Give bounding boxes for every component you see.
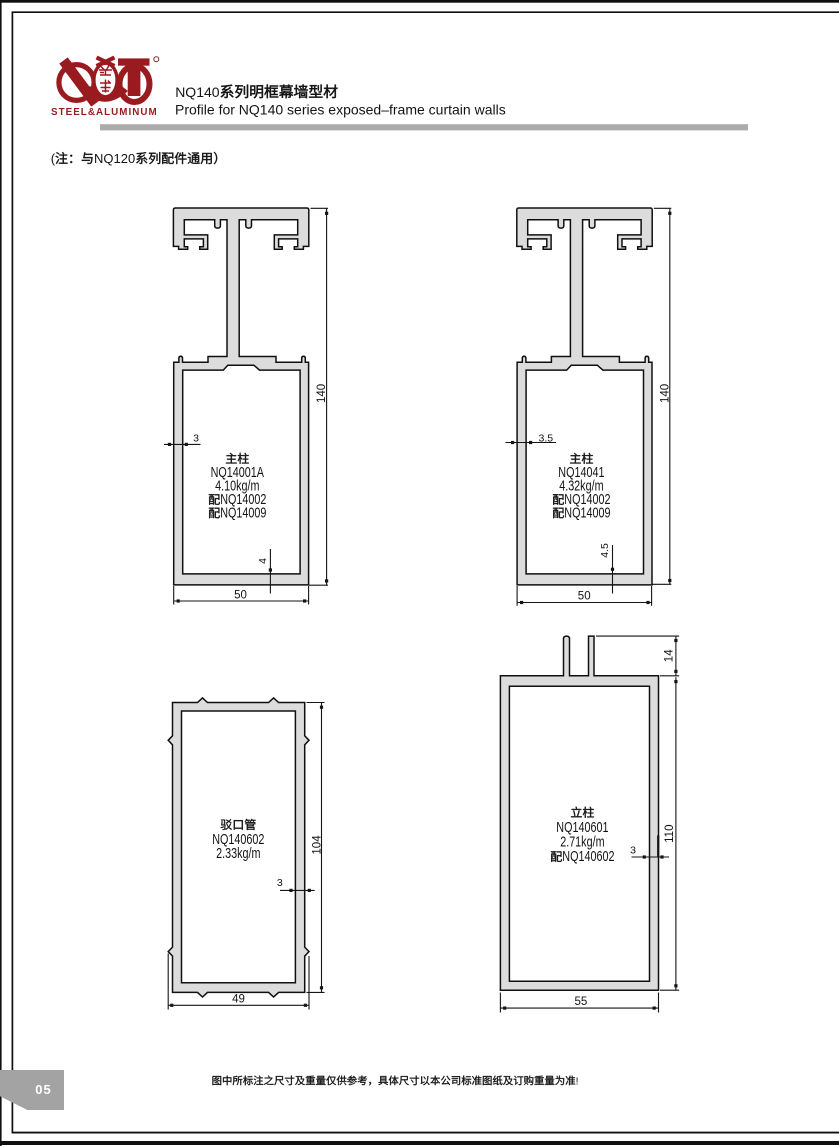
svg-text:50: 50 (578, 590, 591, 602)
svg-text:104: 104 (311, 835, 323, 855)
svg-text:3.5: 3.5 (538, 432, 553, 444)
svg-text:140: 140 (316, 384, 328, 403)
svg-text:4.5: 4.5 (599, 543, 611, 558)
svg-text:STEEL&ALUMINUM: STEEL&ALUMINUM (51, 107, 158, 118)
svg-text:3: 3 (630, 845, 636, 857)
svg-text:NQ140: NQ140 (175, 84, 220, 100)
svg-text:NQ140602: NQ140602 (562, 847, 614, 864)
svg-text:05: 05 (35, 1082, 51, 1097)
svg-text:55: 55 (575, 996, 588, 1008)
svg-text:49: 49 (232, 994, 245, 1006)
svg-text:NQ14009: NQ14009 (564, 504, 610, 521)
svg-text:NQ120: NQ120 (94, 151, 135, 166)
svg-text:3: 3 (277, 877, 283, 889)
svg-text:4: 4 (257, 558, 269, 564)
svg-text:Profile for NQ140 series expos: Profile for NQ140 series exposed–frame c… (175, 101, 506, 117)
svg-text:2.33kg/m: 2.33kg/m (216, 844, 260, 861)
svg-text:110: 110 (664, 825, 676, 843)
svg-text:!: ! (576, 1076, 579, 1087)
svg-text:140: 140 (659, 384, 671, 403)
svg-text:14: 14 (663, 649, 675, 662)
svg-text:3: 3 (193, 432, 199, 444)
svg-text:(: ( (51, 151, 56, 166)
svg-text:NQ14009: NQ14009 (220, 504, 266, 521)
svg-text:50: 50 (234, 589, 247, 601)
